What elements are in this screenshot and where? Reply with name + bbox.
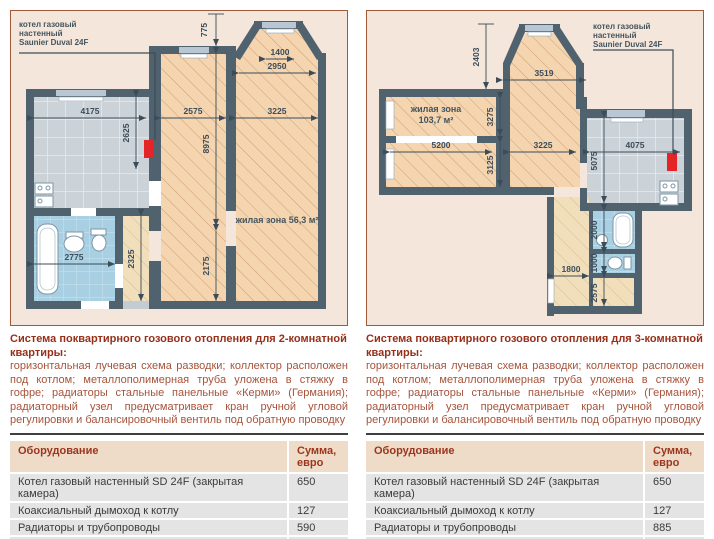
col-sum: Сумма, евро xyxy=(289,441,348,472)
table-row: Котел газовый настенный SD 24F (закрытая… xyxy=(10,474,348,501)
entrance-door-icon xyxy=(123,301,149,309)
row-value: 590 xyxy=(289,520,348,535)
room1-window-icon xyxy=(179,47,209,53)
table-row: Коаксиальный дымоход к котлу 127 xyxy=(10,503,348,518)
row-name: Радиаторы и трубопроводы xyxy=(10,520,287,535)
price-table-2room: Оборудование Сумма, евро Котел газовый н… xyxy=(10,441,348,539)
dim-room2-width: 3225 xyxy=(268,106,287,116)
bay-window-icon xyxy=(525,25,553,31)
dim-kitchen-width: 4075 xyxy=(626,140,645,150)
boiler-label: Saunier Duval 24F xyxy=(593,40,662,49)
boiler-label: котел газовый xyxy=(593,22,651,31)
description-body: горизонтальная лучевая схема разводки; к… xyxy=(10,360,348,428)
dim-room1-width: 2575 xyxy=(184,106,203,116)
row-name: Котел газовый настенный SD 24F (закрытая… xyxy=(366,474,643,501)
description-body: горизонтальная лучевая схема разводки; к… xyxy=(366,360,704,428)
row-value: 650 xyxy=(645,474,704,501)
dim-bath-height: 2000 xyxy=(589,220,599,239)
kitchen-window-icon xyxy=(607,110,645,117)
dim-bay-inner: 1400 xyxy=(271,47,290,57)
dim-room2-height: 3125 xyxy=(485,155,495,174)
row-value: 127 xyxy=(645,503,704,518)
boiler-icon xyxy=(144,140,154,158)
kitchen-window-icon xyxy=(56,90,106,96)
floor-plan-3room-svg: котел газовый настенный Saunier Duval 24… xyxy=(367,11,703,325)
floor-plan-2room: котел газовый настенный Saunier Duval 24… xyxy=(10,10,348,326)
description-title: Система поквартирного гозового отопления… xyxy=(366,333,704,360)
floor-plan-2room-svg: котел газовый настенный Saunier Duval 24… xyxy=(11,11,347,325)
row-name: Радиаторы и трубопроводы xyxy=(366,520,643,535)
dim-hall-height: 2325 xyxy=(126,249,136,268)
dim-top: 775 xyxy=(199,23,209,37)
panel-2room: котел газовый настенный Saunier Duval 24… xyxy=(10,10,348,539)
living-area-label: жилая зона 56,3 м² xyxy=(235,215,319,225)
table-header-row: Оборудование Сумма, евро xyxy=(10,441,348,472)
table-row: Коаксиальный дымоход к котлу 127 xyxy=(366,503,704,518)
toilet-icon xyxy=(608,257,622,269)
description-2room: Система поквартирного гозового отопления… xyxy=(10,333,348,428)
room1-window-icon xyxy=(386,101,394,129)
row-value: 885 xyxy=(645,520,704,535)
balcony-door-icon xyxy=(81,301,109,309)
dim-bay-outer: 2950 xyxy=(268,61,287,71)
divider xyxy=(366,433,704,435)
row-name: Коаксиальный дымоход к котлу xyxy=(366,503,643,518)
row-value: 650 xyxy=(289,474,348,501)
description-title: Система поквартирного гозового отопления… xyxy=(10,333,348,360)
table-row: Котел газовый настенный SD 24F (закрытая… xyxy=(366,474,704,501)
bay-window-icon xyxy=(262,22,296,28)
dim-bay-width: 3519 xyxy=(535,68,554,78)
divider xyxy=(10,433,348,435)
dim-top: 2403 xyxy=(471,47,481,66)
dim-rooms-height: 8975 xyxy=(201,134,211,153)
boiler-label: котел газовый xyxy=(19,20,77,29)
row-name: Коаксиальный дымоход к котлу xyxy=(10,503,287,518)
row-name: Котел газовый настенный SD 24F (закрытая… xyxy=(10,474,287,501)
magazine-page: котел газовый настенный Saunier Duval 24… xyxy=(0,0,714,539)
dim-kitchen-width: 4175 xyxy=(81,106,100,116)
panel-3room: котел газовый настенный Saunier Duval 24… xyxy=(366,10,704,539)
boiler-label: Saunier Duval 24F xyxy=(19,38,88,47)
boiler-label: настенный xyxy=(19,29,63,38)
room2-window-icon xyxy=(386,149,394,179)
dim-hall2-height: 2575 xyxy=(589,283,599,302)
toilet-icon xyxy=(91,229,106,235)
table-row: Радиаторы и трубопроводы 590 xyxy=(10,520,348,535)
price-table-3room: Оборудование Сумма, евро Котел газовый н… xyxy=(366,441,704,539)
description-3room: Система поквартирного гозового отопления… xyxy=(366,333,704,428)
floor-plan-3room: котел газовый настенный Saunier Duval 24… xyxy=(366,10,704,326)
table-row: Радиаторы и трубопроводы 885 xyxy=(366,520,704,535)
dim-hall-width: 1800 xyxy=(562,264,581,274)
dim-room3-width: 3225 xyxy=(534,140,553,150)
dim-kitchen-height: 5075 xyxy=(589,151,599,170)
dim-wc-height: 1000 xyxy=(589,253,599,272)
table-header-row: Оборудование Сумма, евро xyxy=(366,441,704,472)
hall-window-icon xyxy=(548,279,554,303)
living-area-value: 103,7 м² xyxy=(419,115,454,125)
dim-kitchen-height: 2625 xyxy=(121,123,131,142)
col-equipment: Оборудование xyxy=(366,441,643,472)
boiler-label: настенный xyxy=(593,31,637,40)
living-area-label: жилая зона xyxy=(410,104,463,114)
row-value: 127 xyxy=(289,503,348,518)
dim-lower-height: 2175 xyxy=(201,256,211,275)
boiler-icon xyxy=(667,153,677,171)
dim-room1-width: 5200 xyxy=(432,140,451,150)
col-sum: Сумма, евро xyxy=(645,441,704,472)
col-equipment: Оборудование xyxy=(10,441,287,472)
dim-room1-height: 3275 xyxy=(485,107,495,126)
dim-bath-width: 2775 xyxy=(65,252,84,262)
